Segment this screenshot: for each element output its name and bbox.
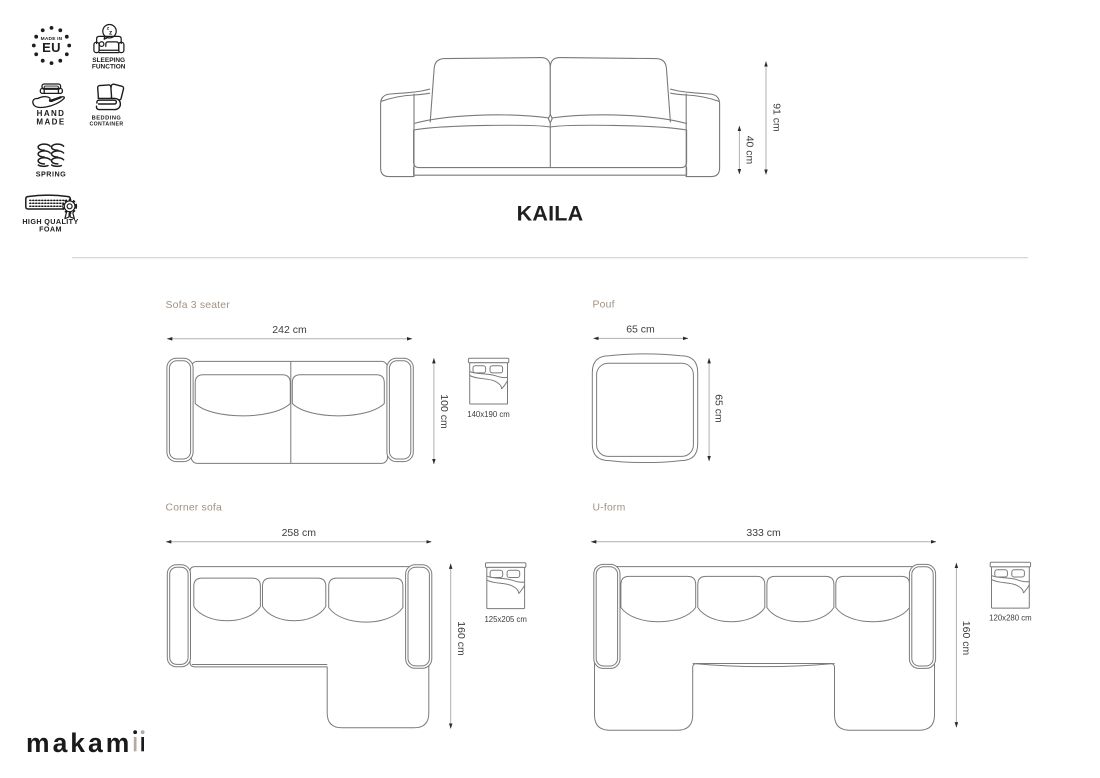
svg-text:125x205 cm: 125x205 cm — [484, 615, 526, 624]
svg-text:65 cm: 65 cm — [712, 394, 724, 423]
svg-text:100 cm: 100 cm — [438, 394, 450, 429]
svg-text:140x190 cm: 140x190 cm — [467, 410, 509, 419]
svg-text:160 cm: 160 cm — [960, 621, 972, 656]
svg-text:FUNCTION: FUNCTION — [92, 64, 126, 71]
svg-text:40 cm: 40 cm — [743, 136, 755, 165]
svg-text:65 cm: 65 cm — [626, 324, 655, 336]
svg-text:120x280 cm: 120x280 cm — [989, 613, 1031, 622]
svg-text:91 cm: 91 cm — [771, 103, 783, 132]
svg-text:160 cm: 160 cm — [455, 621, 467, 656]
svg-text:333 cm: 333 cm — [746, 527, 781, 539]
svg-text:SPRING: SPRING — [36, 170, 67, 179]
svg-text:Sofa 3 seater: Sofa 3 seater — [166, 300, 231, 311]
svg-text:CONTAINER: CONTAINER — [89, 121, 123, 127]
svg-text:Pouf: Pouf — [593, 300, 615, 311]
svg-text:242 cm: 242 cm — [272, 324, 307, 336]
svg-text:U-form: U-form — [593, 503, 626, 514]
svg-text:Corner sofa: Corner sofa — [166, 503, 223, 514]
svg-text:KAILA: KAILA — [517, 202, 584, 226]
svg-text:makam: makam — [26, 728, 132, 758]
svg-text:MADE: MADE — [36, 117, 65, 126]
svg-text:FOAM: FOAM — [39, 225, 62, 234]
svg-text:258 cm: 258 cm — [282, 527, 317, 539]
svg-text:EU: EU — [42, 40, 61, 55]
